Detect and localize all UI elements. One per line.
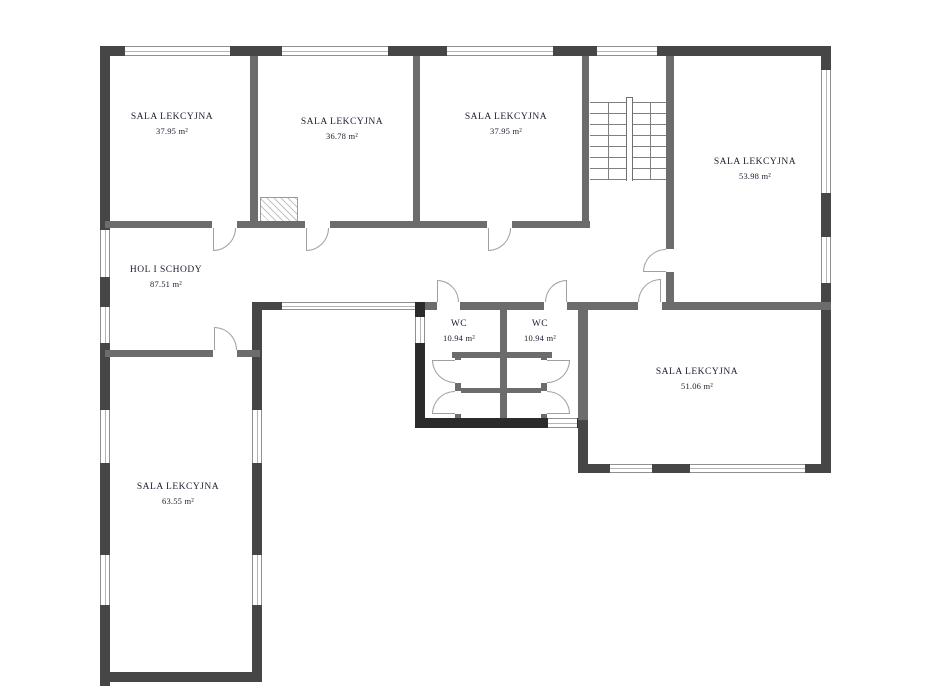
room-area: 51.06 m² [681,381,713,391]
window [821,70,831,193]
wall [500,310,507,418]
floor-plan: SALA LEKCYJNA 37.95 m² SALA LEKCYJNA 36.… [0,0,931,698]
window [821,237,831,283]
window [690,464,805,473]
stair-flight-line [608,102,609,180]
room-label: SALA LEKCYJNA [301,117,383,127]
window [100,307,110,343]
door-swing [545,280,567,302]
room-area: 87.51 m² [150,279,182,289]
door-opening [212,221,237,228]
door-swing [547,360,570,383]
window [100,410,110,463]
stair-flight-line [650,102,651,180]
door-swing [432,391,455,414]
door-opening [487,221,512,228]
door-swing [437,280,459,302]
door-opening [455,360,461,383]
room-label: WC [451,319,467,329]
door-opening [437,302,460,310]
door-swing [432,360,455,383]
shaft-hatch [260,197,298,222]
window [125,46,230,56]
door-swing [638,279,661,302]
wall [413,56,420,221]
window [548,418,577,428]
door-opening [638,302,662,310]
room-area: 36.78 m² [326,131,358,141]
door-opening [305,221,330,228]
door-opening [544,302,567,310]
window [282,46,388,56]
door-swing [488,228,511,251]
door-opening [666,249,674,272]
room-area: 10.94 m² [524,333,556,343]
room-label: WC [532,319,548,329]
wall [582,56,589,228]
wall [452,352,552,358]
wall [100,672,262,682]
door-swing [214,327,237,350]
room-label: HOL I SCHODY [130,265,202,275]
door-swing [306,228,329,251]
door-swing [213,228,236,251]
door-opening [213,350,237,357]
window [415,317,425,343]
room-area: 53.98 m² [739,171,771,181]
wall [250,56,258,221]
room-label: SALA LEKCYJNA [137,482,219,492]
wall [105,221,590,228]
wall [252,302,262,682]
stair-handrail [626,97,633,181]
room-label: SALA LEKCYJNA [656,367,738,377]
room-area: 63.55 m² [162,496,194,506]
window [100,555,110,605]
window [597,46,657,56]
wall [461,388,500,393]
wall [425,302,831,310]
room-label: SALA LEKCYJNA [714,157,796,167]
room-area: 37.95 m² [490,126,522,136]
room-label: SALA LEKCYJNA [465,112,547,122]
room-label: SALA LEKCYJNA [131,112,213,122]
window [252,555,262,605]
window [100,230,110,277]
window [282,302,415,310]
window [610,464,652,473]
window [447,46,553,56]
door-swing [643,249,666,272]
wall [507,388,541,393]
wall [578,310,588,420]
door-opening [455,391,461,414]
window [252,410,262,463]
room-area: 10.94 m² [443,333,475,343]
door-swing [547,391,570,414]
room-area: 37.95 m² [156,126,188,136]
